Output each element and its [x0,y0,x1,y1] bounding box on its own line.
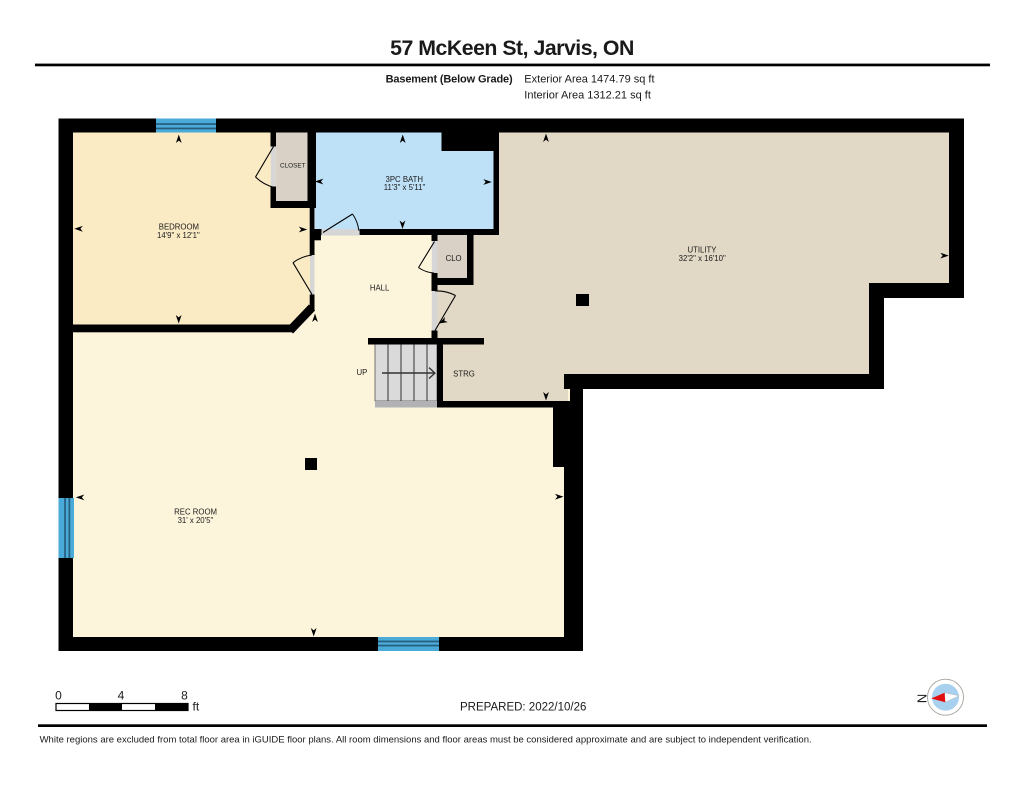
svg-text:BEDROOM: BEDROOM [159,222,199,231]
svg-text:4: 4 [118,689,125,703]
svg-text:PREPARED: 2022/10/26: PREPARED: 2022/10/26 [460,701,586,713]
svg-text:8: 8 [181,689,188,703]
svg-text:31' x 20'5": 31' x 20'5" [178,516,214,525]
svg-text:ft: ft [193,700,200,714]
svg-text:14'9" x 12'1": 14'9" x 12'1" [157,231,200,240]
svg-text:N: N [915,694,930,703]
svg-text:Interior Area 1312.21 sq ft: Interior Area 1312.21 sq ft [524,90,651,102]
svg-text:CLO: CLO [446,254,462,263]
svg-text:11'3" x 5'11": 11'3" x 5'11" [384,183,426,192]
svg-text:CLOSET: CLOSET [280,162,306,169]
svg-text:HALL: HALL [370,283,390,292]
svg-text:STRG: STRG [453,369,475,378]
svg-text:0: 0 [55,689,62,703]
svg-text:Exterior Area 1474.79 sq ft: Exterior Area 1474.79 sq ft [524,74,654,86]
svg-text:Basement (Below Grade): Basement (Below Grade) [386,74,513,86]
svg-text:32'2" x 16'10": 32'2" x 16'10" [679,254,726,263]
svg-text:UP: UP [356,368,367,377]
svg-text:White regions are excluded fro: White regions are excluded from total fl… [40,735,812,746]
svg-text:57 McKeen St, Jarvis, ON: 57 McKeen St, Jarvis, ON [390,36,634,60]
